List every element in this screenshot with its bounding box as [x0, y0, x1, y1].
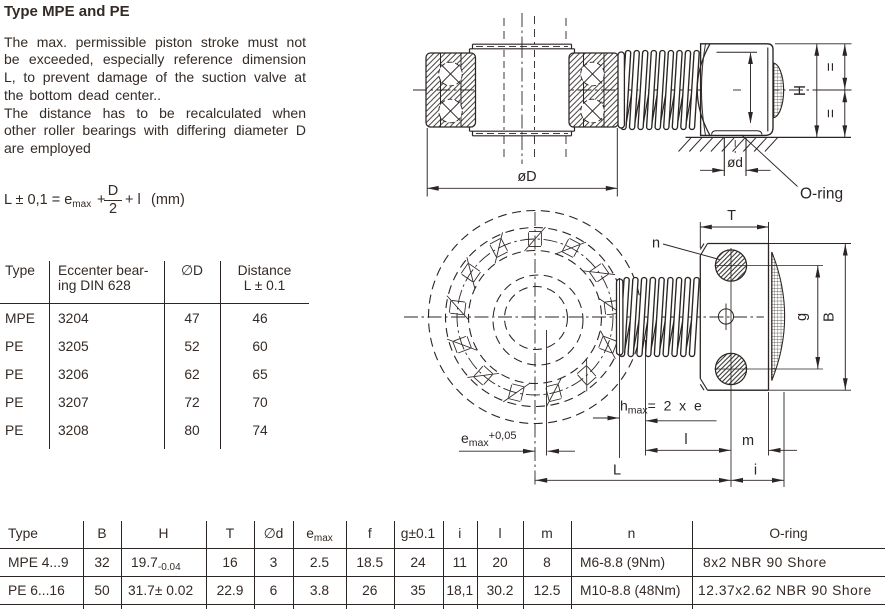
svg-text:=: = — [823, 109, 840, 118]
svg-text:g: g — [794, 313, 810, 321]
svg-text:i: i — [754, 463, 757, 479]
svg-text:n: n — [652, 236, 660, 252]
svg-text:T: T — [727, 208, 736, 224]
svg-text:emax+0,05: emax+0,05 — [461, 430, 516, 449]
svg-text:øD: øD — [517, 169, 536, 185]
svg-text:L: L — [613, 463, 621, 479]
svg-text:m: m — [742, 433, 754, 449]
svg-text:ød: ød — [727, 155, 743, 170]
svg-text:O-ring: O-ring — [800, 186, 843, 203]
svg-text:hmax= 2 x e: hmax= 2 x e — [620, 398, 702, 417]
svg-text:B: B — [822, 312, 838, 322]
svg-text:l: l — [684, 432, 687, 448]
svg-text:=: = — [823, 62, 840, 71]
svg-text:H: H — [792, 85, 809, 96]
